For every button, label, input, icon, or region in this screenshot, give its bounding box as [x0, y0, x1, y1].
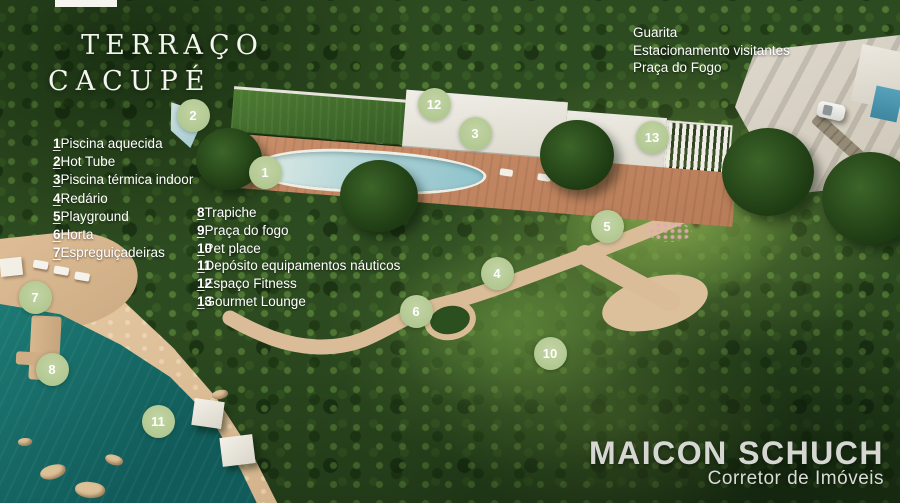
title-line-2: CACUPÉ: [40, 64, 211, 100]
legend-item: 2_Hot Tube: [53, 153, 193, 171]
legend-item: 8_Trapiche: [197, 204, 400, 222]
legend-label: _Depósito equipamentos náuticos: [197, 258, 400, 273]
legend-item: 4_Redário: [53, 190, 193, 208]
realtor-subtitle: Corretor de Imóveis: [589, 468, 884, 490]
legend-label: _Espreguiçadeiras: [53, 245, 165, 260]
marker-4-redario: 4: [481, 257, 514, 290]
marker-8-trapiche: 8: [36, 353, 69, 386]
legend-item: 13_Gourmet Lounge: [197, 293, 400, 311]
marker-1-piscina-aquecida: 1: [249, 156, 282, 189]
legend-number: 6: [53, 226, 61, 244]
marker-3-piscina-indoor: 3: [459, 117, 492, 150]
legend-number: 2: [53, 153, 61, 171]
legend-number: 13: [197, 293, 212, 311]
legend-number: 8: [197, 204, 205, 222]
project-title: TERRAÇOCACUPÉ: [40, 28, 305, 64]
entrance-label: Praça do Fogo: [633, 59, 790, 77]
marker-2-hot-tube: 2: [177, 99, 210, 132]
legend-number: 4: [53, 190, 61, 208]
legend-number: 5: [53, 208, 61, 226]
legend-number: 7: [53, 244, 61, 262]
marker-5-playground: 5: [591, 210, 624, 243]
legend-item: 12_Espaço Fitness: [197, 275, 400, 293]
realtor-branding: MAICON SCHUCH Corretor de Imóveis: [589, 437, 884, 490]
legend-item: 7_Espreguiçadeiras: [53, 244, 193, 262]
logo-partial: [55, 0, 117, 7]
realtor-name: MAICON SCHUCH: [589, 437, 884, 469]
legend-number: 3: [53, 171, 61, 189]
legend-number: 12: [197, 275, 212, 293]
legend-item: 6_Horta: [53, 226, 193, 244]
legend-amenities-mid: 8_Trapiche 9_Praça do fogo 10_Pet place …: [197, 204, 400, 311]
legend-label: _Praça do fogo: [197, 223, 289, 238]
entrance-label: Estacionamento visitantes: [633, 42, 790, 60]
legend-item: 10_Pet place: [197, 240, 400, 258]
entrance-label: Guarita: [633, 24, 790, 42]
legend-number: 9: [197, 222, 205, 240]
title-line-1: TERRAÇO: [81, 30, 264, 61]
legend-item: 3_Piscina térmica indoor: [53, 171, 193, 189]
legend-label: _Gourmet Lounge: [197, 294, 306, 309]
masterplan-aerial-render: TERRAÇOCACUPÉ 1_Piscina aquecida 2_Hot T…: [0, 0, 900, 503]
legend-item: 5_Playground: [53, 208, 193, 226]
legend-item: 9_Praça do fogo: [197, 222, 400, 240]
marker-11-deposito: 11: [142, 405, 175, 438]
legend-label: _Trapiche: [197, 205, 257, 220]
entrance-labels: Guarita Estacionamento visitantes Praça …: [633, 24, 790, 77]
legend-label: _Piscina térmica indoor: [53, 172, 193, 187]
legend-label: _Redário: [53, 191, 108, 206]
legend-number: 11: [197, 257, 211, 275]
legend-label: _Hot Tube: [53, 154, 115, 169]
marker-7-espreguicadeiras: 7: [19, 281, 52, 314]
marker-10-pet-place: 10: [534, 337, 567, 370]
legend-item: 1_Piscina aquecida: [53, 135, 193, 153]
legend-number: 1: [53, 135, 61, 153]
legend-amenities-left: 1_Piscina aquecida 2_Hot Tube 3_Piscina …: [53, 135, 193, 262]
legend-item: 11_Depósito equipamentos náuticos: [197, 257, 400, 275]
legend-label: _Playground: [53, 209, 129, 224]
marker-6-horta: 6: [400, 295, 433, 328]
legend-number: 10: [197, 240, 212, 258]
marker-13-gourmet-lounge: 13: [636, 121, 669, 154]
legend-label: _Piscina aquecida: [53, 136, 163, 151]
marker-12-espaco-fitness: 12: [418, 88, 451, 121]
